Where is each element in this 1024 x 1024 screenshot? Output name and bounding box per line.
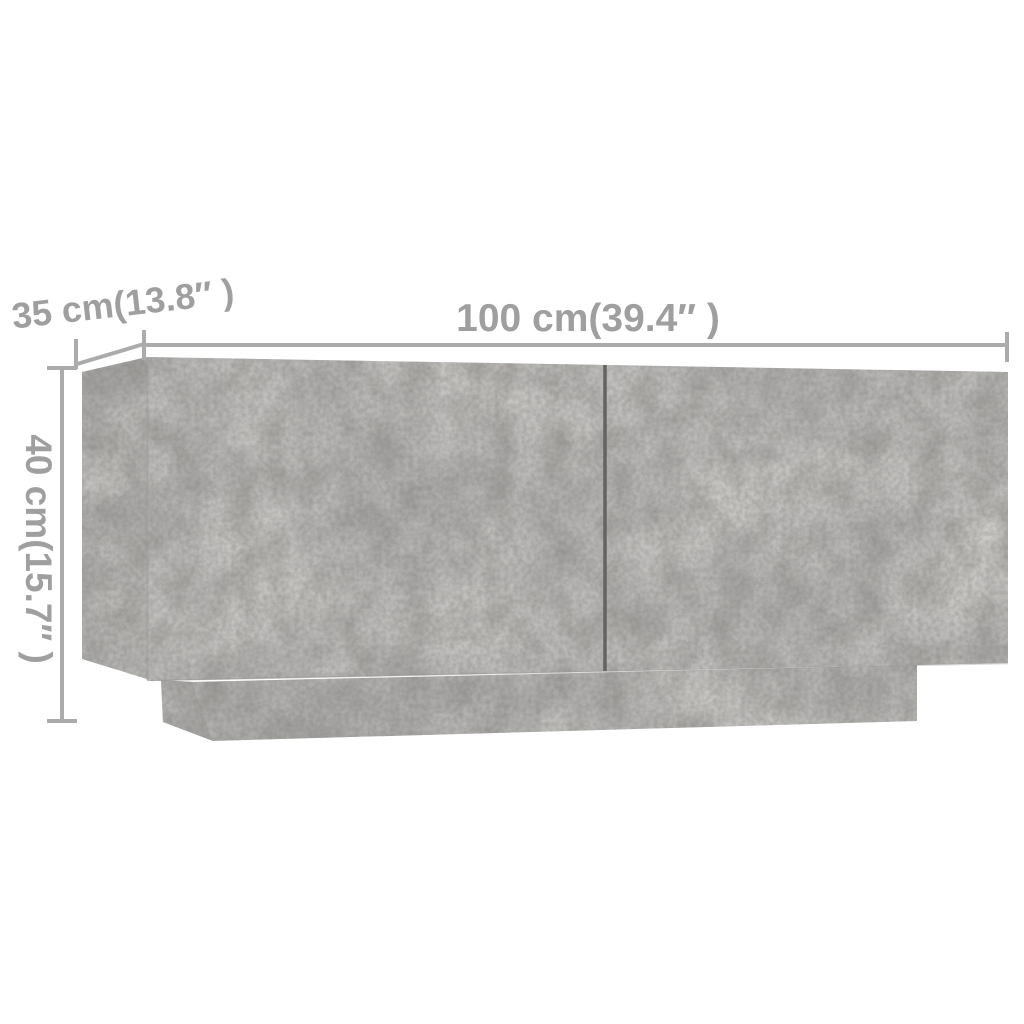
product-illustration: 100 cm(39.4″ ) 35 cm(13.8″ ) 40 cm(15.7″… — [0, 0, 1024, 1024]
cabinet — [82, 357, 1008, 741]
depth-dimension-label: 35 cm(13.8″ ) — [10, 270, 237, 336]
width-dimension-label: 100 cm(39.4″ ) — [456, 297, 720, 340]
height-dimension-label: 40 cm(15.7″ ) — [18, 434, 59, 664]
product-dimension-image: 100 cm(39.4″ ) 35 cm(13.8″ ) 40 cm(15.7″… — [0, 0, 1024, 1024]
cabinet-left-side-panel — [82, 357, 147, 679]
cabinet-doors-front-face — [147, 357, 1008, 681]
